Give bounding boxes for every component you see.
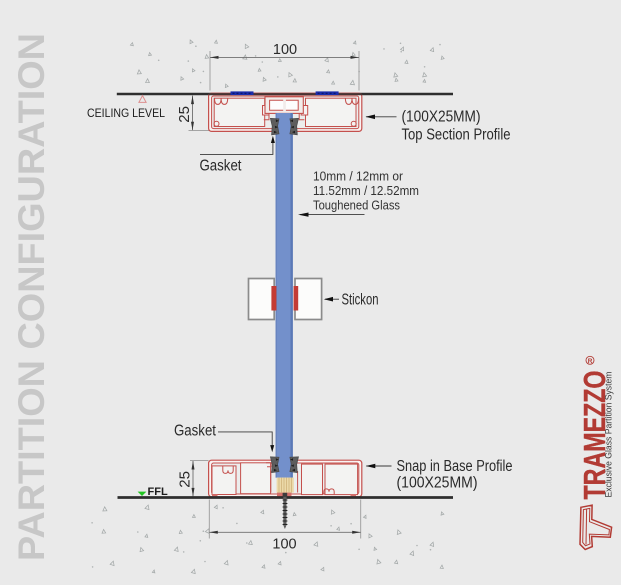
svg-text:(100X25MM): (100X25MM) [402, 109, 481, 126]
svg-text:R: R [588, 358, 593, 365]
svg-text:25: 25 [176, 106, 193, 123]
svg-text:11.52mm / 12.52mm: 11.52mm / 12.52mm [313, 183, 419, 198]
svg-text:Toughened Glass: Toughened Glass [313, 197, 400, 212]
svg-text:25: 25 [176, 471, 193, 488]
svg-text:Stickon: Stickon [342, 291, 379, 308]
svg-text:Gasket: Gasket [174, 423, 217, 440]
svg-text:100: 100 [272, 537, 296, 553]
svg-text:100: 100 [273, 42, 297, 58]
svg-text:Top Section Profile: Top Section Profile [402, 127, 511, 144]
svg-text:10mm / 12mm or: 10mm / 12mm or [313, 168, 404, 183]
svg-text:PARTITION CONFIGURATION: PARTITION CONFIGURATION [10, 33, 52, 561]
svg-text:Exclusive Glass Partition Syst: Exclusive Glass Partition System [603, 371, 614, 497]
svg-text:Gasket: Gasket [200, 158, 243, 175]
svg-text:CEILING LEVEL: CEILING LEVEL [87, 108, 166, 120]
svg-text:Snap in Base Profile: Snap in Base Profile [397, 458, 513, 475]
svg-text:(100X25MM): (100X25MM) [397, 475, 478, 492]
